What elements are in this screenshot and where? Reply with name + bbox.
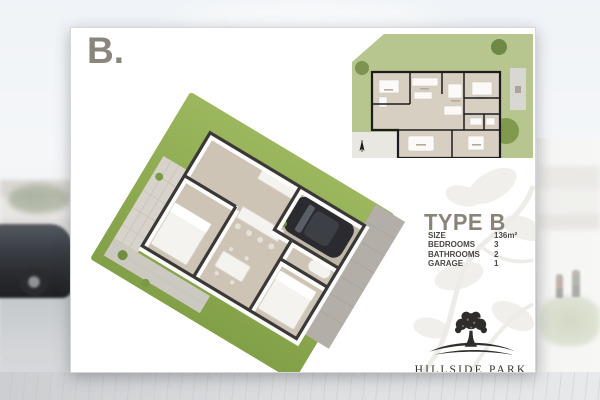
car-wheel	[20, 268, 48, 296]
spec-value: 1	[494, 259, 536, 268]
site-driveway-entry	[352, 132, 402, 158]
spec-label: GARAGE	[428, 259, 494, 268]
spec-label: SIZE	[428, 231, 494, 240]
floorplan-2d-site	[352, 34, 533, 158]
plan-letter-label: B.	[87, 30, 124, 72]
spec-label: BEDROOMS	[428, 240, 494, 249]
spec-value: 136m²	[494, 231, 536, 240]
brand-logo: HILLSIDE PARK	[398, 310, 536, 373]
spec-value: 2	[494, 250, 536, 259]
tree-logo-icon	[423, 310, 519, 358]
parked-car	[0, 224, 72, 298]
spec-label: BATHROOMS	[428, 250, 494, 259]
brand-name: HILLSIDE PARK	[398, 364, 536, 373]
spec-value: 3	[494, 240, 536, 249]
spec-table: SIZE 136m² BEDROOMS 3 BATHROOMS 2 GARAGE…	[428, 231, 536, 268]
plan-card: B.	[70, 27, 536, 373]
flyer-root: B.	[0, 0, 600, 400]
